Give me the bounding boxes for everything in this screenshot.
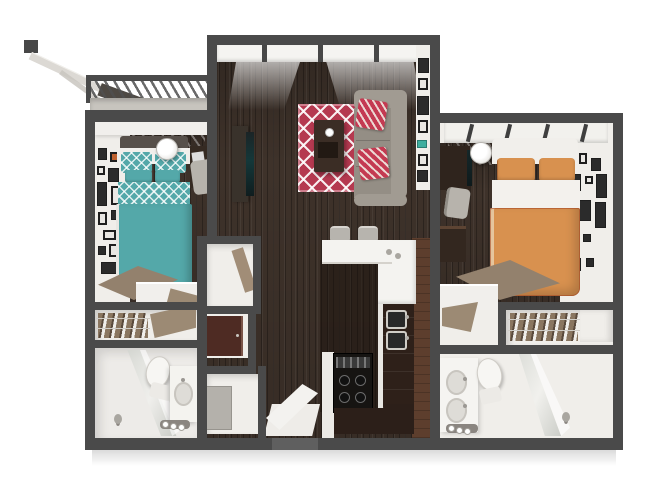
chevron-throw-pillow	[355, 98, 388, 131]
cabinet-handle	[236, 334, 239, 337]
apartment-floor-plan	[0, 0, 650, 490]
wall	[207, 35, 217, 238]
vanity-sink	[446, 370, 467, 395]
kitchen-counter-corner	[384, 404, 414, 434]
orange-pillow	[497, 158, 535, 182]
picture-frame	[585, 176, 593, 184]
wall	[436, 345, 613, 354]
stove-burner	[355, 392, 366, 403]
table-lamp	[156, 138, 178, 160]
table-lamp	[470, 142, 492, 164]
picture-frame	[97, 182, 107, 206]
vanity-sink	[446, 398, 467, 423]
wall	[258, 366, 266, 438]
wall	[498, 302, 506, 346]
wall	[85, 340, 207, 348]
wall	[85, 438, 623, 450]
picture-frame	[101, 262, 117, 274]
bed-sheet-fold	[492, 180, 580, 210]
stove-burner	[355, 375, 366, 386]
picture-frame	[98, 148, 107, 160]
picture-frame	[586, 258, 594, 267]
vanity-light	[456, 427, 463, 434]
sofa-seam	[356, 140, 390, 141]
sink-faucet	[463, 377, 467, 381]
counter-fixture	[395, 253, 401, 259]
picture-frame	[418, 120, 428, 133]
teal-accent-decor	[417, 140, 427, 148]
tv-screen	[246, 132, 254, 196]
wall	[197, 236, 207, 438]
stove-control-panel	[336, 357, 370, 368]
picture-frame	[417, 170, 428, 182]
sink-faucet	[181, 378, 185, 382]
stove-burner	[339, 375, 350, 386]
kitchen-sink-basin	[386, 310, 407, 329]
wall	[197, 366, 256, 374]
vanity-light	[162, 421, 169, 428]
bedroom-desk	[440, 146, 470, 190]
dresser	[440, 226, 466, 262]
wall	[85, 110, 95, 450]
balcony-railing-bar	[86, 75, 216, 81]
picture-frame	[103, 230, 116, 240]
wall	[207, 35, 440, 45]
sofa-back-right	[390, 90, 407, 198]
shoe-shelf	[98, 313, 148, 338]
vanity-light	[170, 423, 177, 430]
left-bedroom-top-wall-face	[95, 122, 207, 135]
closet-rail	[508, 319, 580, 320]
breakfast-bar-counter	[322, 240, 392, 264]
entry-threshold	[272, 438, 318, 450]
wall	[85, 302, 207, 310]
living-window-wall	[217, 45, 430, 62]
kitchen-counter-edge	[378, 304, 383, 408]
closet-shelf-board	[580, 310, 613, 342]
picture-frame	[595, 202, 606, 228]
vanity-light	[178, 424, 185, 431]
picture-frame	[98, 246, 106, 255]
sink-faucet	[405, 315, 409, 319]
orange-pillow	[539, 158, 575, 182]
water-heater-panel	[206, 386, 232, 430]
sink-faucet	[405, 336, 409, 340]
drop-shadow	[92, 450, 616, 466]
closet-rail	[96, 328, 150, 329]
picture-frame	[418, 78, 428, 90]
picture-frame	[579, 153, 587, 164]
kitchen-sink-basin	[386, 331, 407, 350]
sink-faucet	[463, 404, 467, 408]
vanity-light	[448, 425, 455, 432]
picture-frame	[108, 168, 119, 182]
picture-frame	[97, 166, 105, 175]
picture-frame	[418, 58, 429, 73]
bed-patterned-fold	[118, 182, 190, 206]
wall	[248, 306, 256, 366]
desk-chair	[443, 186, 471, 219]
window-mullion	[262, 45, 267, 62]
wall	[85, 110, 217, 122]
kitchen-wall-stub	[322, 352, 334, 438]
stove-burner	[339, 392, 350, 403]
vanity-light	[464, 428, 471, 435]
coffee-table-tray	[318, 142, 338, 158]
wall	[253, 236, 261, 314]
picture-frame	[417, 96, 429, 115]
vanity-sink	[174, 382, 193, 406]
wall	[430, 113, 623, 123]
picture-frame	[418, 154, 428, 166]
bathroom-accessory	[562, 412, 570, 422]
window-mullion	[318, 45, 323, 62]
bathroom-accessory	[114, 414, 122, 424]
wall	[197, 236, 261, 244]
shoe-shelf	[510, 313, 578, 341]
picture-frame	[591, 158, 601, 171]
coffee-cup	[325, 128, 334, 137]
picture-frame	[583, 234, 591, 242]
chevron-throw-pillow	[357, 146, 390, 180]
window-mullion	[374, 45, 379, 62]
wall	[430, 35, 440, 438]
closet-rail	[508, 330, 580, 331]
picture-frame	[596, 174, 607, 198]
picture-frame	[98, 212, 107, 225]
wall	[498, 302, 613, 310]
sofa-armrest	[354, 194, 407, 206]
counter-fixture	[386, 249, 392, 255]
wall	[613, 113, 623, 450]
closet-rail	[96, 318, 150, 319]
